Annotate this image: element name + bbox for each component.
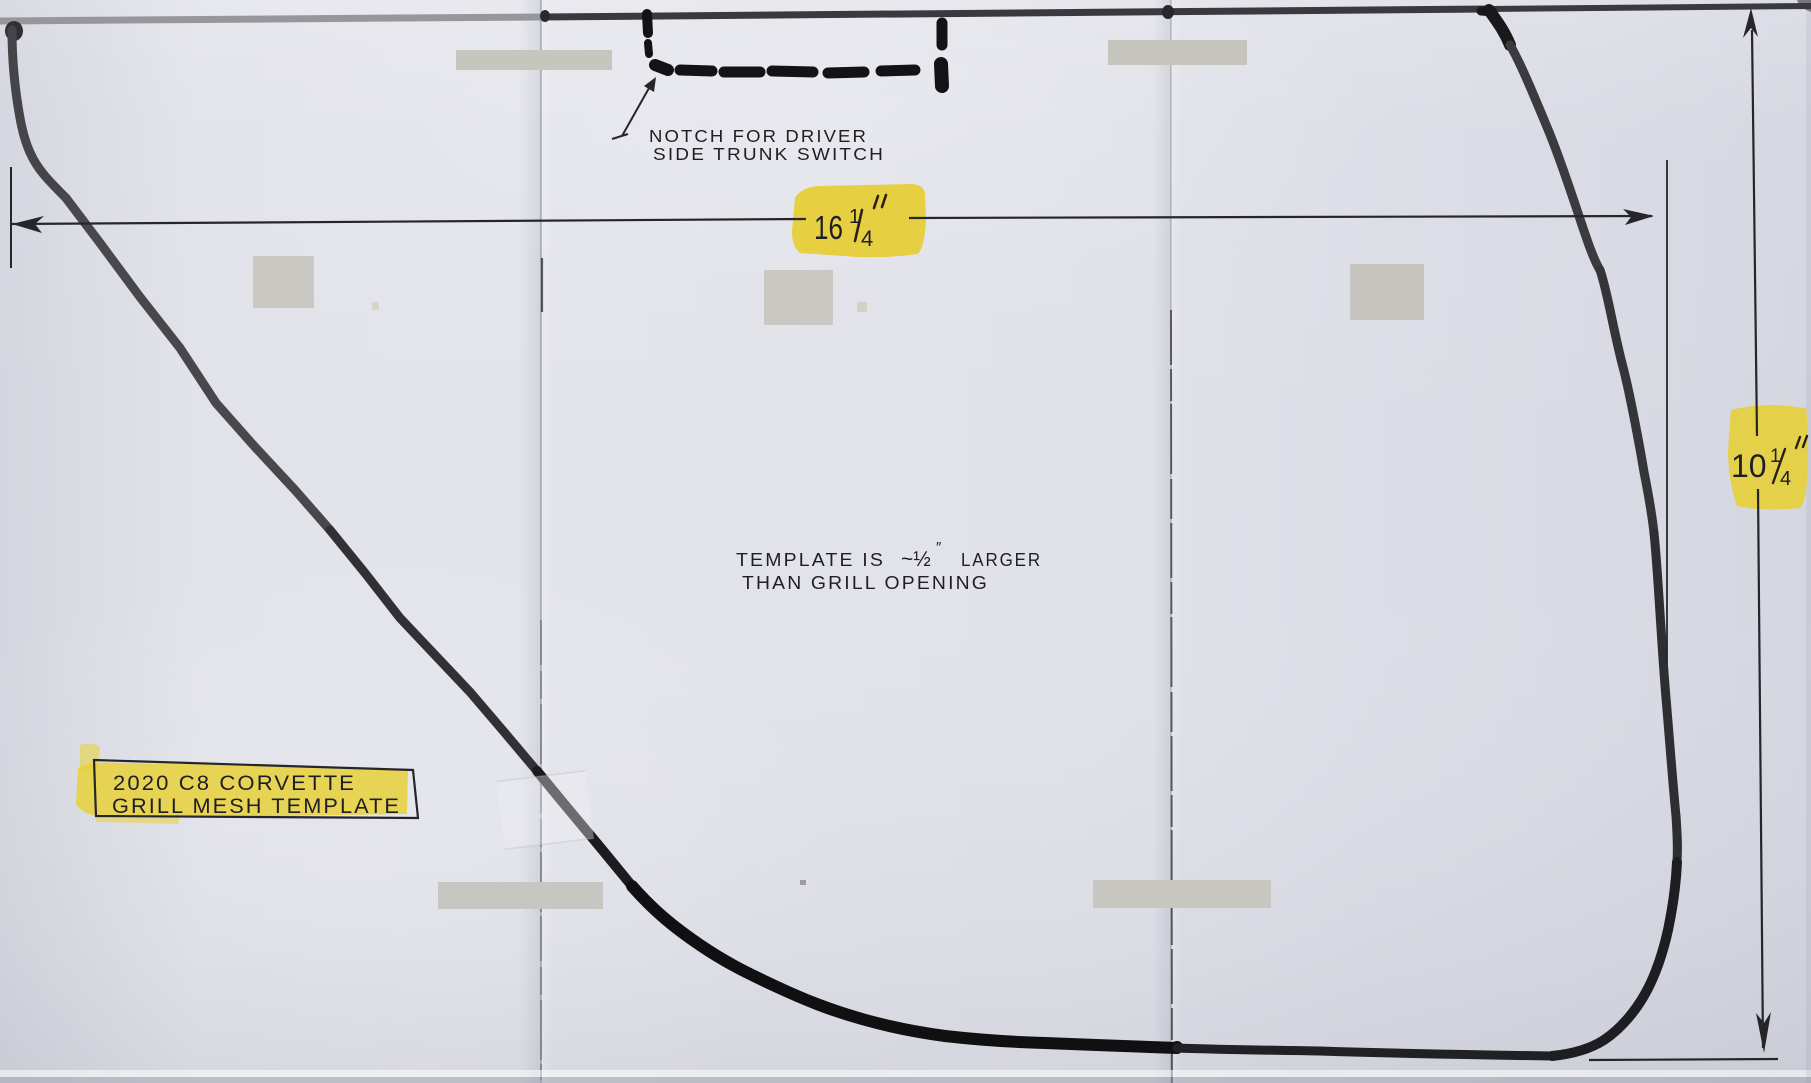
svg-text:GRILL MESH TEMPLATE: GRILL MESH TEMPLATE — [112, 795, 401, 818]
svg-text:″: ″ — [936, 539, 942, 556]
svg-text:16: 16 — [814, 209, 843, 246]
svg-text:2020 C8 CORVETTE: 2020 C8 CORVETTE — [113, 772, 356, 795]
svg-text:NOTCH FOR DRIVER: NOTCH FOR DRIVER — [649, 126, 868, 146]
svg-text:4: 4 — [861, 226, 873, 251]
svg-text:TEMPLATE IS: TEMPLATE IS — [736, 550, 885, 570]
svg-text:10: 10 — [1731, 448, 1767, 484]
svg-text:THAN GRILL OPENING: THAN GRILL OPENING — [742, 573, 989, 593]
svg-text:~½: ~½ — [901, 548, 931, 571]
svg-text:SIDE TRUNK SWITCH: SIDE TRUNK SWITCH — [653, 144, 885, 164]
svg-text:LARGER: LARGER — [961, 550, 1042, 570]
svg-text:4: 4 — [1780, 468, 1791, 490]
